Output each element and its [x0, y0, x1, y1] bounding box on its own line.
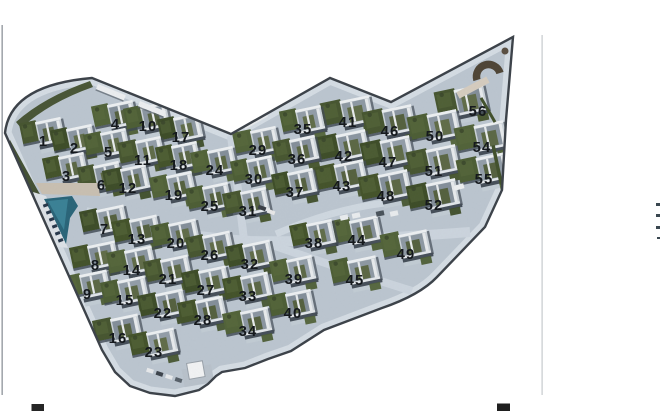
svg-text:45: 45 — [346, 273, 365, 289]
svg-text:19: 19 — [165, 188, 184, 204]
svg-text:16: 16 — [109, 331, 128, 347]
svg-text:1: 1 — [39, 134, 47, 150]
svg-text:24: 24 — [206, 163, 225, 179]
svg-text:20: 20 — [167, 236, 186, 252]
svg-text:40: 40 — [284, 306, 303, 322]
svg-text:5: 5 — [104, 145, 112, 161]
svg-text:14: 14 — [123, 263, 142, 279]
svg-text:54: 54 — [473, 140, 492, 156]
svg-text:37: 37 — [286, 185, 305, 201]
svg-text:33: 33 — [239, 289, 258, 305]
svg-text:38: 38 — [305, 236, 324, 252]
svg-text:41: 41 — [339, 115, 358, 131]
svg-text:47: 47 — [379, 155, 398, 171]
svg-text:12: 12 — [119, 181, 138, 197]
svg-text:52: 52 — [425, 198, 444, 214]
svg-text:22: 22 — [154, 306, 173, 322]
svg-text:56: 56 — [469, 104, 488, 120]
svg-text:27: 27 — [197, 283, 216, 299]
svg-text:39: 39 — [285, 272, 304, 288]
svg-text:10: 10 — [139, 119, 158, 135]
svg-text:26: 26 — [201, 248, 220, 264]
svg-text:4: 4 — [111, 117, 120, 133]
svg-text:13: 13 — [128, 232, 147, 248]
svg-text:44: 44 — [348, 233, 367, 249]
svg-text:32: 32 — [241, 257, 260, 273]
svg-text:2: 2 — [70, 141, 78, 157]
svg-text:28: 28 — [194, 313, 213, 329]
svg-text:34: 34 — [239, 324, 258, 340]
svg-text:6: 6 — [97, 178, 105, 194]
svg-text:30: 30 — [245, 172, 264, 188]
svg-text:21: 21 — [159, 272, 178, 288]
svg-text:8: 8 — [91, 258, 99, 274]
svg-text:50: 50 — [426, 129, 445, 145]
svg-text:17: 17 — [172, 130, 191, 146]
svg-text:3: 3 — [62, 169, 70, 185]
svg-text:15: 15 — [116, 293, 135, 309]
svg-text:36: 36 — [288, 152, 307, 168]
svg-text:48: 48 — [377, 189, 396, 205]
svg-text:51: 51 — [425, 164, 444, 180]
svg-text:31: 31 — [239, 204, 258, 220]
svg-text:35: 35 — [294, 122, 313, 138]
svg-text:55: 55 — [475, 172, 494, 188]
svg-text:42: 42 — [335, 149, 354, 165]
svg-text:18: 18 — [170, 158, 189, 174]
svg-text:25: 25 — [201, 199, 220, 215]
svg-text:9: 9 — [83, 287, 91, 303]
svg-text:43: 43 — [333, 179, 352, 195]
svg-text:7: 7 — [100, 222, 108, 238]
svg-text:29: 29 — [249, 143, 268, 159]
svg-text:11: 11 — [134, 153, 152, 169]
svg-text:49: 49 — [397, 247, 416, 263]
svg-text:23: 23 — [145, 345, 164, 361]
svg-text:46: 46 — [381, 124, 400, 140]
